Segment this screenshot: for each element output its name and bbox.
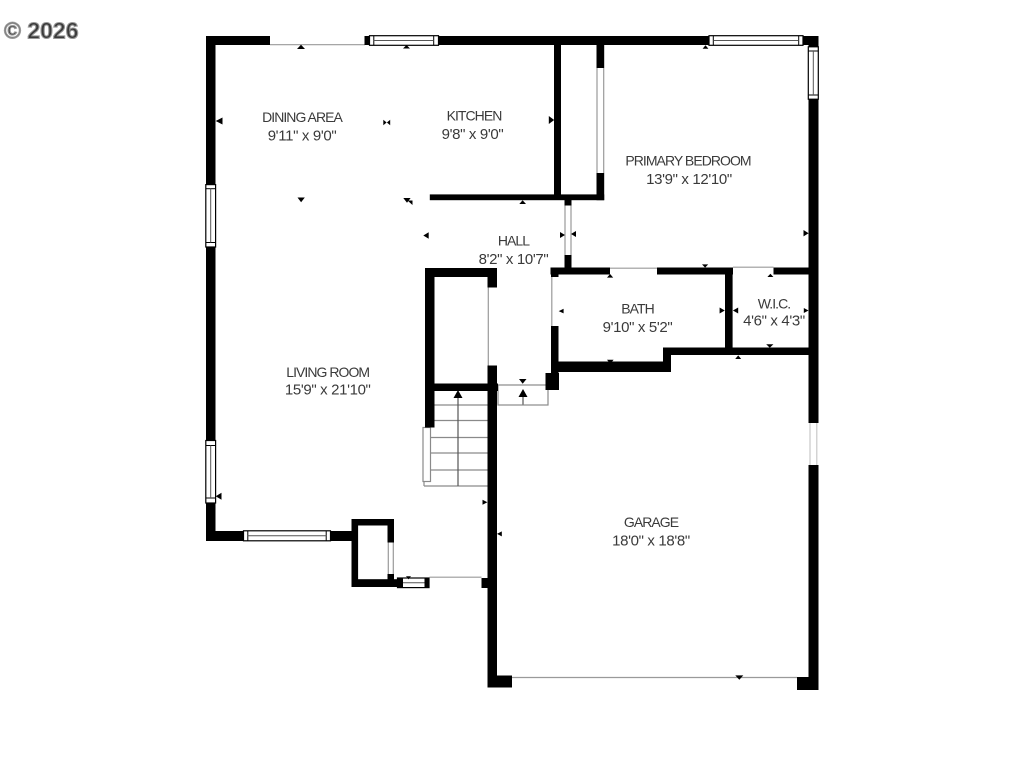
svg-text:W.I.C.: W.I.C. (758, 296, 790, 312)
svg-text:13'9" x 12'10": 13'9" x 12'10" (646, 171, 732, 188)
svg-text:9'11" x 9'0": 9'11" x 9'0" (268, 127, 337, 144)
svg-text:18'0" x 18'8": 18'0" x 18'8" (612, 532, 690, 549)
svg-text:PRIMARY BEDROOM: PRIMARY BEDROOM (625, 153, 751, 169)
svg-text:KITCHEN: KITCHEN (447, 108, 502, 124)
svg-text:BATH: BATH (621, 301, 654, 317)
svg-text:LIVING ROOM: LIVING ROOM (286, 364, 369, 380)
svg-text:GARAGE: GARAGE (624, 514, 679, 530)
svg-text:8'2" x 10'7": 8'2" x 10'7" (479, 251, 549, 268)
svg-text:DINING AREA: DINING AREA (262, 109, 343, 125)
svg-text:© 2026: © 2026 (4, 18, 79, 44)
svg-text:4'6" x 4'3": 4'6" x 4'3" (743, 313, 805, 330)
svg-text:HALL: HALL (498, 233, 530, 249)
svg-text:15'9" x 21'10": 15'9" x 21'10" (285, 382, 371, 399)
svg-text:9'8" x 9'0": 9'8" x 9'0" (442, 126, 504, 143)
svg-text:9'10" x 5'2": 9'10" x 5'2" (603, 319, 673, 336)
